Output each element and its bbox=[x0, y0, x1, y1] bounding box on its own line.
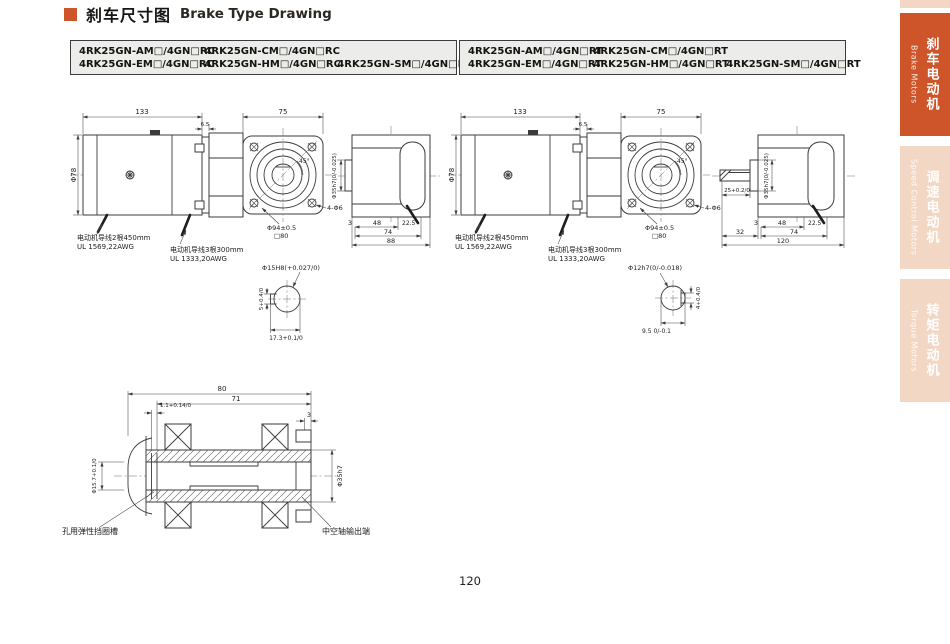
dim-angle-22-5: 22.5° bbox=[402, 220, 418, 227]
dim-88: 88 bbox=[387, 237, 395, 245]
tab-speed-control-motors[interactable]: 调速电动机 Speed Control Motors bbox=[900, 146, 950, 269]
dim-71: 71 bbox=[232, 395, 241, 403]
tab-label-en: Brake Motors bbox=[910, 45, 919, 104]
drawing-rc-motor bbox=[70, 108, 343, 263]
drawing-rt-motor bbox=[448, 108, 721, 263]
label-circlip-groove: 孔用弹性挡圈槽 bbox=[62, 526, 118, 536]
tab-label-en: Torque Motors bbox=[910, 309, 919, 372]
tab-strip-top-sliver bbox=[900, 0, 950, 8]
dim-48: 48 bbox=[778, 219, 786, 227]
dim-74: 74 bbox=[384, 228, 392, 236]
dim-3: 3 bbox=[754, 219, 758, 227]
page-number: 120 bbox=[430, 574, 510, 588]
dim-shaft-diameter: Φ12h7(0/-0.018) bbox=[628, 264, 682, 272]
dim-3: 3 bbox=[348, 219, 352, 227]
technical-drawings: 133 6.5 75 Φ78 45° Φ94±0.5 □80 4-Φ6 电动机导… bbox=[0, 0, 950, 644]
dim-bore-diameter: Φ15H8(+0.027/0) bbox=[262, 264, 320, 272]
dim-output-shaft: Φ35h7(0/-0.025) bbox=[764, 153, 770, 199]
dim-48: 48 bbox=[373, 219, 381, 227]
dim-output-shaft: Φ35h7(0/-0.025) bbox=[332, 153, 338, 199]
dim-3: 3 bbox=[307, 411, 311, 419]
label-hollow-output: 中空轴输出端 bbox=[322, 526, 370, 536]
tab-label-zh: 刹车电动机 bbox=[922, 37, 941, 112]
drawing-hollow-shaft: 80 71 1.1+0.14/0 3 Φ15.7+0.1/0 Φ35h7 孔用弹… bbox=[62, 385, 370, 536]
side-tab-bar: 刹车电动机 Brake Motors 调速电动机 Speed Control M… bbox=[900, 0, 950, 644]
dim-groove-diameter: Φ15.7+0.1/0 bbox=[92, 458, 98, 494]
tab-label-en: Speed Control Motors bbox=[910, 159, 919, 255]
catalog-page: 刹车尺寸图 Brake Type Drawing 4RK25GN-AM□/4GN… bbox=[0, 0, 950, 644]
dim-keyway-depth: 17.3+0.1/0 bbox=[269, 335, 303, 342]
tab-label-zh: 转矩电动机 bbox=[922, 303, 941, 378]
dim-key-width: 4+0.4/0 bbox=[696, 286, 702, 309]
drawing-rt-gearhead-profile: Φ35h7(0/-0.025) 25+0.2/0 3 48 22.5° 32 7… bbox=[712, 126, 856, 248]
dim-32: 32 bbox=[736, 228, 744, 236]
tab-brake-motors[interactable]: 刹车电动机 Brake Motors bbox=[900, 13, 950, 136]
dim-hollow-od: Φ35h7 bbox=[336, 465, 344, 487]
dim-80: 80 bbox=[218, 385, 227, 393]
detail-shaft-section: Φ12h7(0/-0.018) 4+0.4/0 9.5 0/-0.1 bbox=[628, 264, 702, 335]
dim-shaft-length: 25+0.2/0 bbox=[724, 188, 750, 194]
dim-keyway-width: 5+0.4/0 bbox=[259, 287, 265, 310]
tab-torque-motors[interactable]: 转矩电动机 Torque Motors bbox=[900, 279, 950, 402]
detail-bore-section: Φ15H8(+0.027/0) 5+0.4/0 17.3+0.1/0 bbox=[259, 264, 320, 342]
dim-groove-width: 1.1+0.14/0 bbox=[160, 403, 191, 409]
tab-label-zh: 调速电动机 bbox=[922, 170, 941, 245]
dim-flat-width: 9.5 0/-0.1 bbox=[642, 328, 671, 335]
dim-120: 120 bbox=[777, 237, 789, 245]
drawing-rc-gearhead-profile: Φ35h7(0/-0.025) 3 48 22.5° 74 88 bbox=[332, 126, 440, 248]
dim-74: 74 bbox=[790, 228, 798, 236]
dim-angle-22-5: 22.5° bbox=[808, 220, 824, 227]
